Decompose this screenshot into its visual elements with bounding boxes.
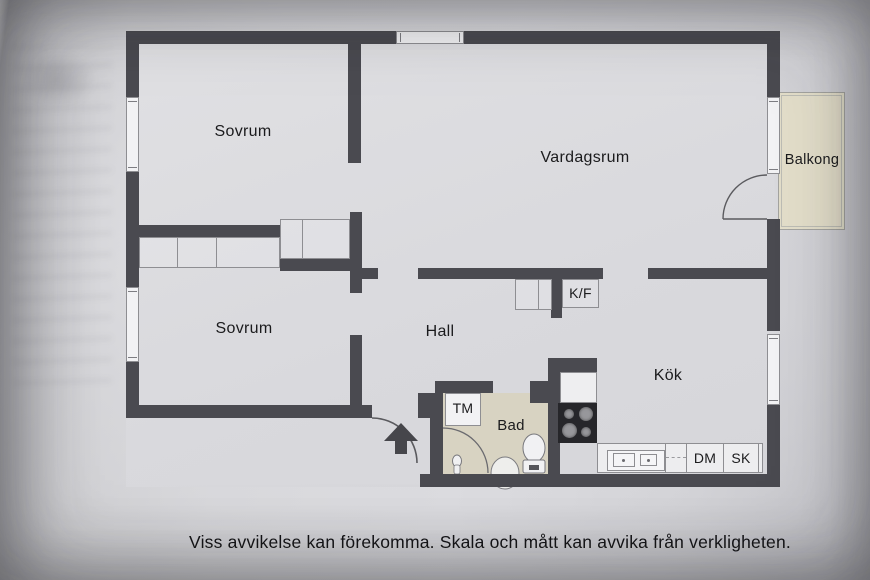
burner-icon (581, 427, 591, 437)
wall-segment (126, 31, 139, 97)
wall-segment (530, 381, 548, 403)
burner-icon (562, 423, 577, 438)
closet-cell (280, 219, 303, 259)
window (767, 334, 780, 405)
counter-dashed-line (666, 457, 686, 458)
room-label-bedroom-top: Sovrum (183, 123, 303, 141)
toilet-bowl-icon (523, 434, 545, 462)
wall-segment (280, 258, 352, 271)
wall-segment (767, 44, 780, 97)
sink-drain-dot (622, 459, 625, 462)
wall-segment (562, 268, 603, 279)
closet-cell (216, 237, 280, 268)
wall-segment (362, 268, 378, 279)
shower-fitting-base-icon (454, 465, 460, 474)
wall-segment (464, 31, 780, 44)
room-label-bedroom-bottom: Sovrum (184, 320, 304, 338)
wall-segment (548, 358, 597, 372)
window (396, 31, 464, 44)
entry-arrow-head-icon (384, 423, 418, 441)
dishwasher-label: DM (687, 450, 723, 466)
wall-segment (418, 268, 552, 279)
wall-segment (126, 172, 139, 288)
wall-segment (350, 335, 362, 407)
room-label-kitchen: Kök (628, 367, 708, 385)
wall-segment (348, 31, 361, 163)
wall-segment (767, 219, 780, 331)
entry-arrow-icon (395, 440, 407, 454)
burner-icon (579, 407, 593, 421)
burner-icon (564, 409, 574, 419)
kitchen-cabinet-box (560, 372, 597, 403)
label-fridge-freezer: K/F (561, 285, 600, 301)
closet-cell (139, 237, 178, 268)
shower-arc (443, 428, 488, 473)
closet-divider (538, 280, 539, 309)
balcony-door-arc (723, 175, 767, 219)
wall-segment (648, 268, 767, 279)
toilet-button-icon (529, 465, 539, 470)
room-label-bathroom: Bad (482, 417, 540, 434)
stove (558, 403, 597, 443)
sink-drain-dot (647, 459, 650, 462)
room-label-hall: Hall (410, 323, 470, 341)
closet-cell (177, 237, 217, 268)
room-label-balcony: Balkong (777, 152, 847, 168)
wall-segment (435, 381, 493, 393)
wall-segment (350, 212, 362, 293)
kitchen-counter: DM SK (597, 443, 763, 473)
wall-segment (420, 474, 780, 487)
counter-divider (665, 444, 666, 472)
room-label-living-room: Vardagsrum (505, 149, 665, 167)
wall-segment (139, 225, 280, 237)
window (126, 287, 139, 362)
counter-divider (758, 444, 759, 472)
wall-segment (126, 405, 372, 418)
wall-segment (418, 393, 443, 418)
disclaimer-caption: Viss avvikelse kan förekomma. Skala och … (110, 532, 870, 553)
cabinet-label: SK (724, 450, 758, 466)
floorplan-photo: DM SK Sovrum Vardagsrum Balkong Sovrum H… (0, 0, 870, 580)
closet-cell (302, 219, 350, 259)
window (126, 97, 139, 172)
label-washing-machine: TM (446, 400, 480, 416)
hall-closet (515, 279, 552, 310)
